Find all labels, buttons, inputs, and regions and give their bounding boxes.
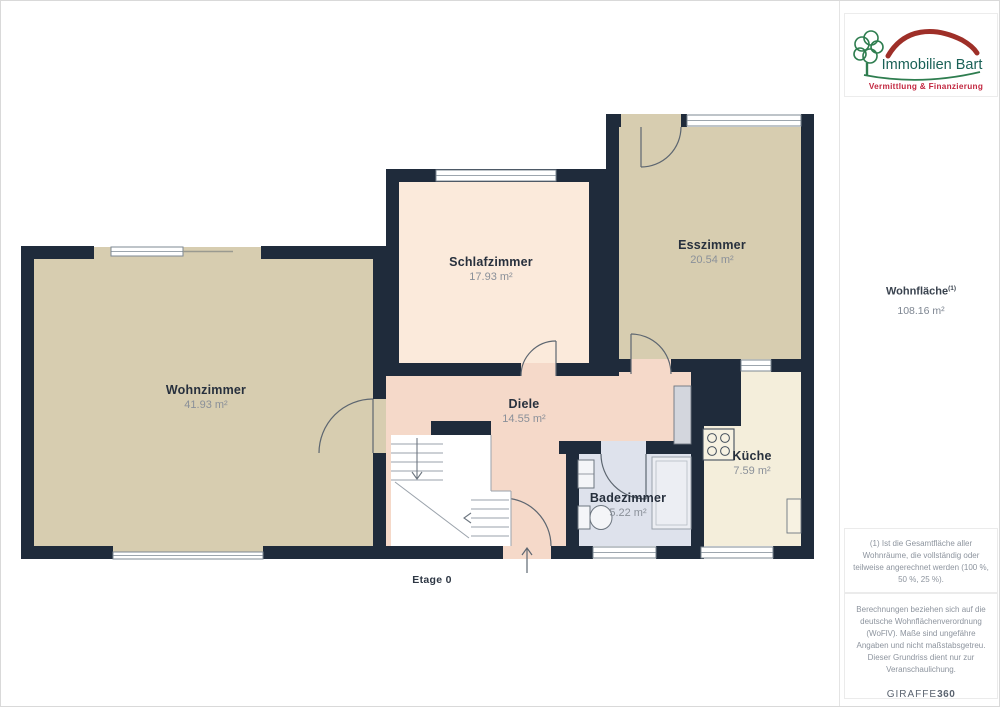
sidebar-divider [839,1,840,707]
floorplan-drawing [1,1,839,707]
esszimmer-floor [619,127,805,359]
floor-label: Etage 0 [412,574,451,586]
living-area-summary: Wohnfläche(1) 108.16 m² [844,285,998,317]
toilet-icon [578,506,612,530]
disclaimer-card: Berechnungen beziehen sich auf die deuts… [844,593,998,699]
shower-icon [652,457,691,529]
wohnzimmer-floor [34,259,373,546]
living-area-label: Wohnfläche(1) [844,285,998,298]
footnote-text: (1) Ist die Gesamtfläche aller Wohnräume… [853,539,989,584]
footnote-marker: (1) [948,285,956,292]
shaft [674,386,691,444]
logo-underline-swoosh [864,72,980,80]
disclaimer-text: Berechnungen beziehen sich auf die deuts… [856,605,985,674]
tree-icon [854,31,883,76]
schlafzimmer-floor [399,182,589,363]
logo-brand-text: Immobilien Bart [882,57,983,73]
footnote-card: (1) Ist die Gesamtfläche aller Wohnräume… [844,528,998,593]
logo-tagline: Vermittlung & Finanzierung [869,82,983,91]
company-logo: Immobilien Bart Vermittlung & Finanzieru… [844,13,998,97]
kitchen-counter [787,499,801,533]
giraffe360-watermark: GIRAFFE360 [854,687,988,702]
logo-graphic: Immobilien Bart Vermittlung & Finanzieru… [846,16,996,94]
roof-icon [888,32,977,56]
stove-icon [703,429,734,460]
floorplan-page: Wohnzimmer 41.93 m² Schlafzimmer 17.93 m… [0,0,1000,707]
sink-icon [578,460,594,488]
living-area-value: 108.16 m² [844,305,998,317]
